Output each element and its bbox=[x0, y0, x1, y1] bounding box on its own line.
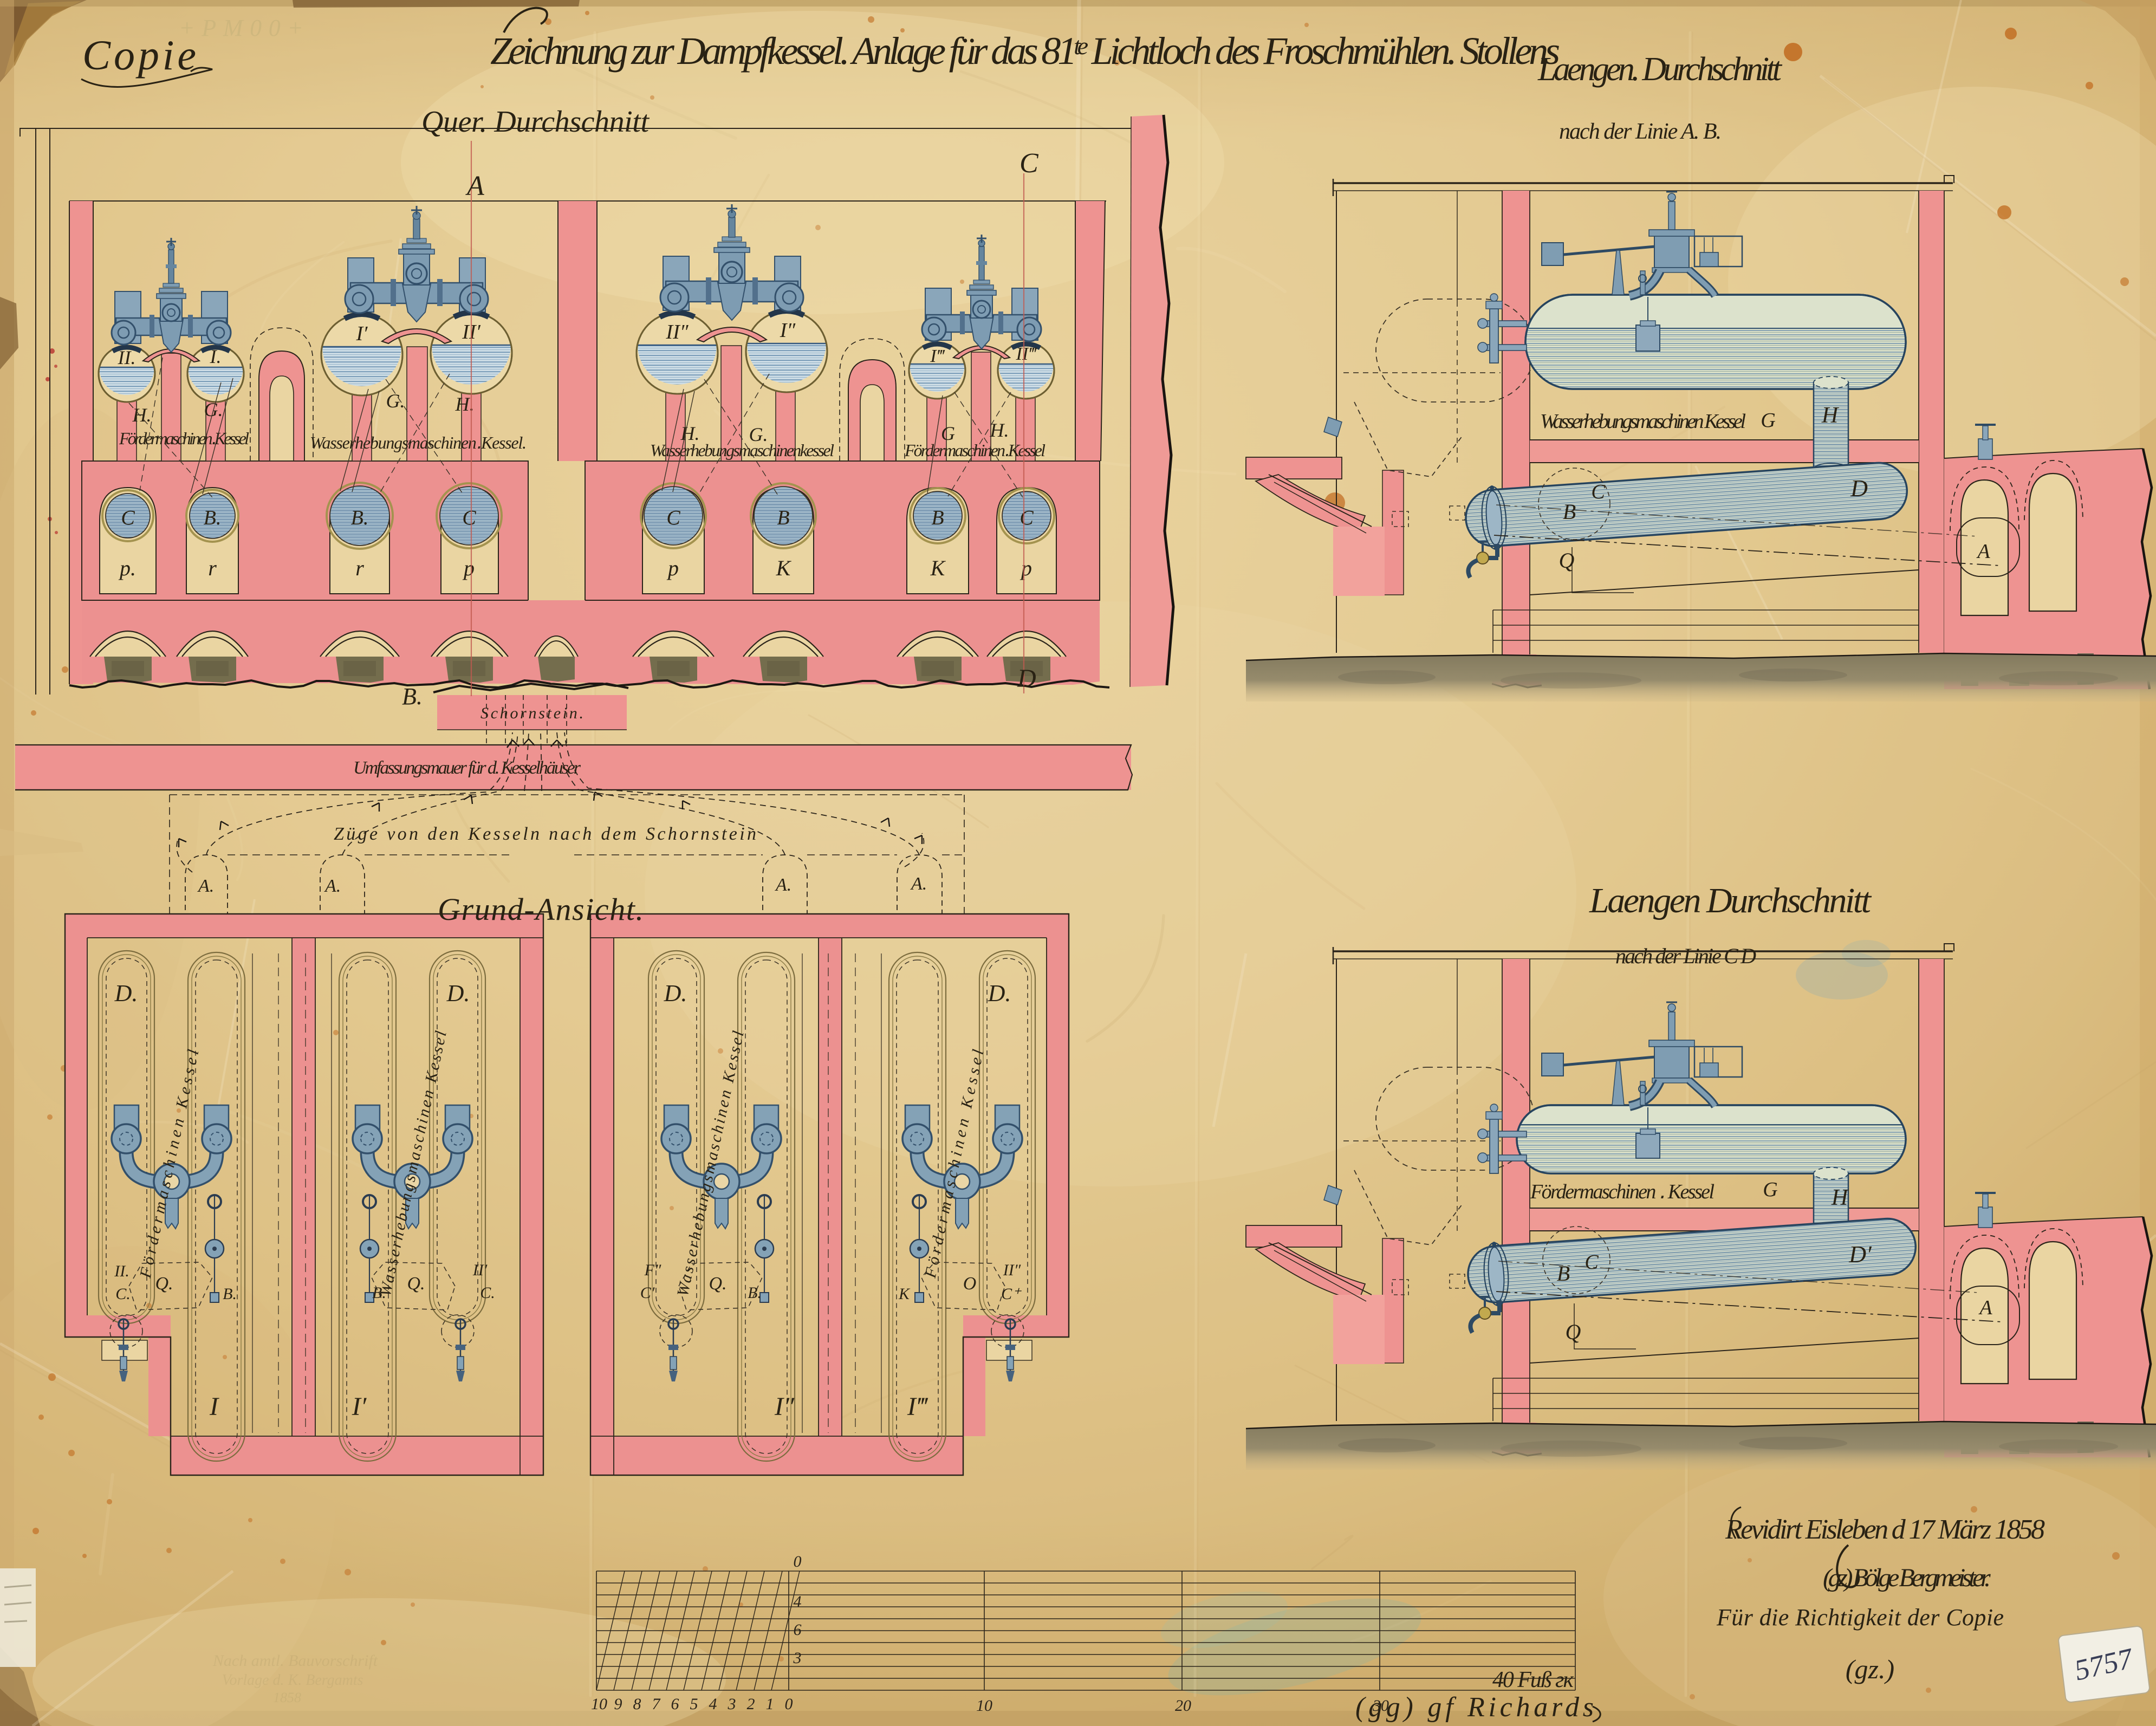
svg-text:I″: I″ bbox=[774, 1392, 795, 1421]
svg-text:C: C bbox=[462, 507, 476, 529]
svg-text:K: K bbox=[898, 1285, 911, 1303]
svg-text:Laengen Durchschnitt: Laengen Durchschnitt bbox=[1589, 881, 1872, 920]
svg-text:1: 1 bbox=[766, 1695, 774, 1713]
svg-text:H: H bbox=[1821, 403, 1840, 428]
svg-text:C: C bbox=[1019, 507, 1034, 529]
svg-text:C: C bbox=[1019, 148, 1039, 179]
svg-text:D: D bbox=[1017, 664, 1036, 693]
svg-text:A.: A. bbox=[324, 876, 341, 896]
svg-text:nach der Linie A. B.: nach der Linie A. B. bbox=[1559, 119, 1722, 144]
svg-text:B.: B. bbox=[351, 507, 369, 529]
svg-text:A: A bbox=[1976, 540, 1990, 563]
svg-text:C′: C′ bbox=[640, 1284, 655, 1302]
svg-text:C: C bbox=[121, 507, 135, 529]
svg-text:Fördermaschinen․Kessel: Fördermaschinen․Kessel bbox=[119, 429, 249, 448]
svg-text:0: 0 bbox=[785, 1695, 793, 1713]
svg-text:A.: A. bbox=[910, 874, 927, 894]
svg-text:II″: II″ bbox=[1003, 1261, 1021, 1279]
svg-text:5: 5 bbox=[690, 1695, 698, 1713]
svg-text:p: p bbox=[1019, 556, 1032, 580]
svg-text:H: H bbox=[1831, 1185, 1849, 1210]
svg-text:10: 10 bbox=[976, 1697, 992, 1715]
svg-text:3: 3 bbox=[728, 1695, 736, 1713]
svg-text:Q.: Q. bbox=[155, 1274, 173, 1294]
svg-text:Wasserhebungsmaschinenkessel: Wasserhebungsmaschinenkessel bbox=[650, 440, 834, 460]
svg-text:O: O bbox=[963, 1274, 977, 1294]
svg-text:(gz) Bölge Bergmeister.: (gz) Bölge Bergmeister. bbox=[1823, 1563, 1991, 1592]
svg-text:H.: H. bbox=[132, 404, 152, 426]
svg-text:10: 10 bbox=[591, 1695, 607, 1713]
svg-text:B: B bbox=[931, 507, 944, 529]
svg-text:F″: F″ bbox=[644, 1261, 661, 1279]
svg-text:II‴: II‴ bbox=[1016, 344, 1037, 364]
svg-text:8: 8 bbox=[633, 1695, 641, 1713]
svg-text:2: 2 bbox=[747, 1695, 755, 1713]
svg-text:3: 3 bbox=[793, 1649, 802, 1667]
svg-text:Wasserhebungsmaschinen․Kessel.: Wasserhebungsmaschinen․Kessel. bbox=[310, 433, 527, 452]
svg-text:C⁺: C⁺ bbox=[1001, 1285, 1022, 1303]
svg-text:40 Fuß гк: 40 Fuß гк bbox=[1492, 1667, 1574, 1692]
svg-text:Q: Q bbox=[1566, 1320, 1581, 1344]
svg-text:I.: I. bbox=[210, 346, 222, 367]
svg-text:Züge von den Kesseln nach dem: Züge von den Kesseln nach dem Schornstei… bbox=[334, 824, 756, 844]
svg-text:D: D bbox=[1850, 475, 1868, 502]
svg-text:nach der Linie C D: nach der Linie C D bbox=[1615, 944, 1756, 968]
svg-text:p: p bbox=[462, 556, 475, 580]
svg-text:Zeichnung zur Dampfkessel. Anl: Zeichnung zur Dampfkessel. Anlage für da… bbox=[490, 29, 1560, 73]
svg-text:r: r bbox=[208, 556, 217, 580]
svg-text:Quer. Durchschnitt: Quer. Durchschnitt bbox=[421, 105, 650, 139]
svg-text:A.: A. bbox=[775, 875, 791, 895]
svg-text:9: 9 bbox=[614, 1695, 622, 1713]
svg-text:p: p bbox=[666, 556, 679, 580]
svg-text:C: C bbox=[666, 507, 680, 529]
svg-text:B.: B. bbox=[402, 683, 423, 710]
svg-text:Für die Richtigkeit der Copie: Für die Richtigkeit der Copie bbox=[1716, 1604, 2004, 1631]
svg-text:D′: D′ bbox=[1848, 1241, 1872, 1268]
svg-text:6: 6 bbox=[794, 1621, 802, 1639]
svg-text:D.: D. bbox=[446, 980, 470, 1007]
svg-text:G: G bbox=[1761, 409, 1775, 432]
svg-text:1858: 1858 bbox=[273, 1690, 301, 1705]
svg-text:4: 4 bbox=[709, 1695, 717, 1713]
svg-text:p.: p. bbox=[118, 556, 136, 580]
svg-text:(gz.): (gz.) bbox=[1846, 1654, 1894, 1684]
svg-text:D.: D. bbox=[114, 980, 138, 1007]
svg-text:(gg) gf Richards: (gg) gf Richards bbox=[1355, 1692, 1594, 1723]
svg-text:Grund-Ansicht.: Grund-Ansicht. bbox=[438, 892, 644, 927]
svg-text:I″: I″ bbox=[780, 319, 796, 342]
svg-text:I′: I′ bbox=[356, 322, 368, 345]
svg-text:Nach amtl. Bauvorschrift: Nach amtl. Bauvorschrift bbox=[212, 1652, 378, 1670]
svg-text:B.: B. bbox=[223, 1285, 237, 1303]
svg-text:C: C bbox=[1591, 481, 1605, 503]
svg-text:0: 0 bbox=[794, 1553, 802, 1571]
svg-text:A: A bbox=[1978, 1296, 1992, 1319]
svg-text:I‴: I‴ bbox=[930, 346, 945, 366]
svg-text:II″: II″ bbox=[665, 321, 689, 343]
svg-text:B.: B. bbox=[204, 507, 222, 529]
svg-text:Revidirt Eisleben d 17 März 18: Revidirt Eisleben d 17 März 1858 bbox=[1725, 1514, 2045, 1545]
svg-text:r: r bbox=[355, 556, 364, 580]
svg-text:II.: II. bbox=[118, 347, 136, 368]
svg-text:I: I bbox=[209, 1392, 219, 1421]
svg-text:4: 4 bbox=[794, 1593, 802, 1611]
svg-text:A: A bbox=[465, 171, 484, 202]
svg-text:Vorlage d. K. Bergamts: Vorlage d. K. Bergamts bbox=[222, 1672, 363, 1689]
svg-text:20: 20 bbox=[1175, 1697, 1191, 1715]
svg-text:I‴: I‴ bbox=[907, 1392, 928, 1421]
svg-text:I′: I′ bbox=[352, 1392, 367, 1421]
svg-text:Q: Q bbox=[1559, 548, 1575, 573]
svg-text:K: K bbox=[930, 556, 946, 580]
svg-text:C.: C. bbox=[480, 1284, 495, 1302]
svg-text:II.: II. bbox=[114, 1262, 129, 1280]
svg-text:K: K bbox=[776, 556, 792, 580]
svg-text:Q.: Q. bbox=[407, 1274, 425, 1294]
svg-text:Wasserhebungsmaschinen Kessel: Wasserhebungsmaschinen Kessel bbox=[1540, 410, 1746, 433]
svg-text:C.: C. bbox=[115, 1285, 131, 1303]
svg-text:B.: B. bbox=[748, 1284, 762, 1302]
svg-text:Umfassungsmauer für d. Kesselh: Umfassungsmauer für d. Kesselhäuser bbox=[353, 758, 581, 778]
svg-text:6: 6 bbox=[671, 1695, 679, 1713]
svg-text:C: C bbox=[1584, 1251, 1599, 1274]
svg-text:B: B bbox=[777, 507, 789, 529]
svg-text:D.: D. bbox=[664, 980, 687, 1007]
svg-text:II′: II′ bbox=[472, 1261, 488, 1279]
svg-text:A.: A. bbox=[197, 876, 214, 896]
svg-text:Fördermaschinen ․ Kessel: Fördermaschinen ․ Kessel bbox=[1530, 1180, 1715, 1203]
svg-text:B: B bbox=[1557, 1261, 1570, 1286]
svg-text:G: G bbox=[1763, 1178, 1777, 1201]
svg-text:B: B bbox=[1563, 499, 1576, 524]
svg-text:Laengen. Durchschnitt: Laengen. Durchschnitt bbox=[1537, 51, 1783, 88]
svg-text:D.: D. bbox=[988, 980, 1011, 1007]
svg-text:Q.: Q. bbox=[709, 1274, 726, 1294]
svg-text:7: 7 bbox=[652, 1695, 661, 1713]
